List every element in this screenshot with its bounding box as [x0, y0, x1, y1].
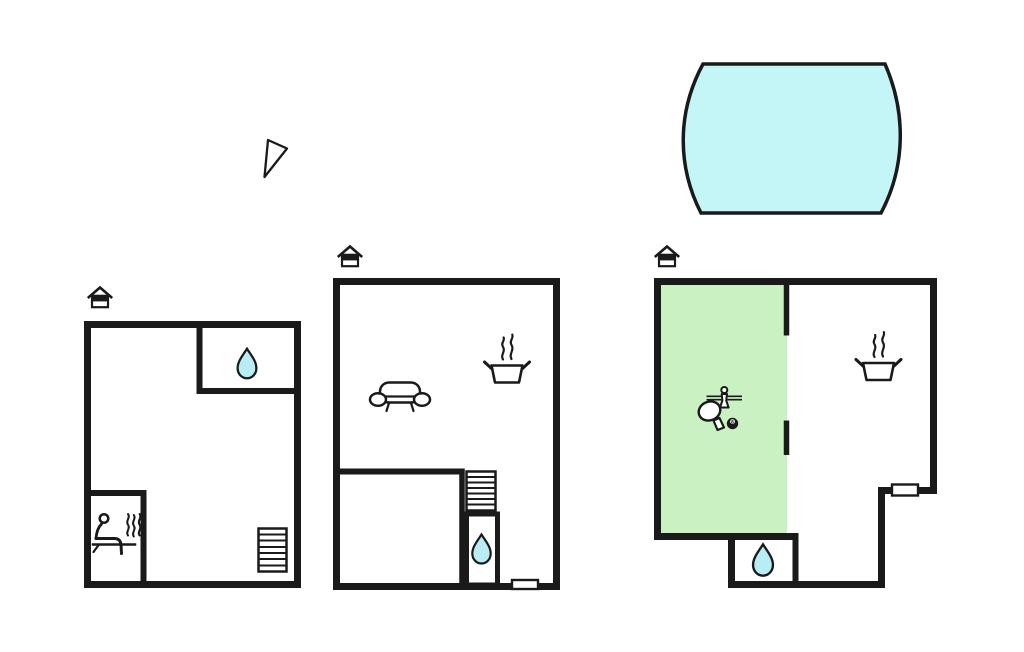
floor-plan-sheet: 8	[0, 0, 1024, 652]
home-entrance-icon	[655, 247, 679, 267]
door-marker	[512, 580, 538, 589]
green-recreation-room	[661, 285, 787, 533]
eight-ball-number: 8	[731, 419, 734, 424]
staircase-icon	[467, 472, 496, 511]
home-entrance-icon	[88, 288, 112, 308]
floor-plan-1	[87, 324, 298, 585]
floor-plan-2	[337, 282, 557, 590]
exterior-wall	[337, 282, 557, 587]
door-marker	[892, 485, 918, 496]
staircase-icon	[259, 529, 287, 572]
north-arrow-icon	[265, 140, 288, 177]
home-entrance-icon	[338, 247, 362, 267]
floor-plan-3: 8	[658, 282, 934, 585]
billiard-8-ball-icon: 8	[727, 418, 738, 429]
swimming-pool	[683, 64, 900, 213]
